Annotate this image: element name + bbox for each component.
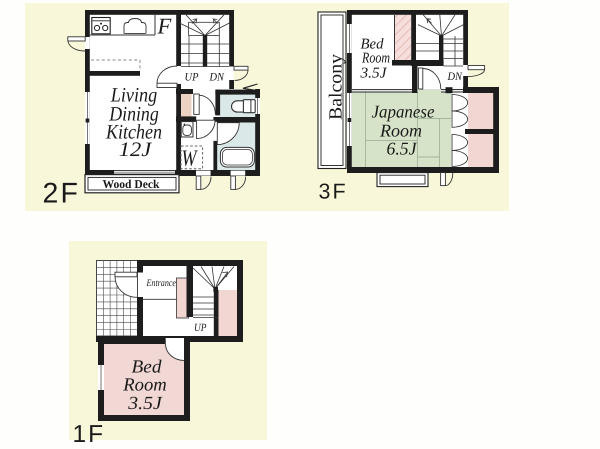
svg-text:Balcony: Balcony (327, 53, 347, 120)
svg-text:Room: Room (122, 376, 167, 396)
svg-text:W: W (182, 146, 198, 171)
svg-text:DN: DN (209, 72, 226, 84)
svg-text:F: F (157, 14, 172, 39)
svg-text:UP: UP (185, 72, 199, 84)
svg-text:3F: 3F (319, 180, 348, 204)
svg-text:1F: 1F (73, 421, 106, 448)
svg-text:6.5J: 6.5J (387, 139, 418, 159)
svg-text:3.5J: 3.5J (127, 394, 162, 414)
svg-text:Japanese: Japanese (372, 102, 435, 122)
svg-text:Room: Room (361, 51, 390, 67)
svg-text:Room: Room (379, 121, 422, 141)
svg-text:UP: UP (194, 322, 207, 334)
svg-text:3.5J: 3.5J (359, 66, 387, 82)
svg-text:DN: DN (447, 71, 464, 83)
svg-text:12J: 12J (119, 139, 152, 161)
svg-text:Wood Deck: Wood Deck (103, 177, 160, 191)
svg-text:Entrance: Entrance (146, 278, 177, 289)
svg-text:2F: 2F (43, 178, 81, 210)
svg-text:Bed: Bed (132, 358, 163, 378)
